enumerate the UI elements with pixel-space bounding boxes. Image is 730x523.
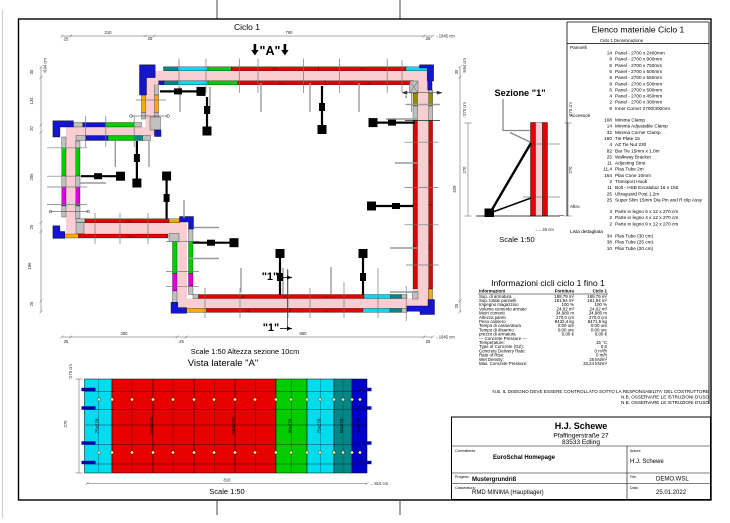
svg-text:240: 240 <box>323 295 329 299</box>
svg-text:25: 25 <box>29 224 34 229</box>
svg-text:EuroSchal Homepage: EuroSchal Homepage <box>493 455 556 461</box>
svg-text:255: 255 <box>29 173 34 181</box>
svg-text:34: 34 <box>607 234 613 239</box>
svg-text:90x270: 90x270 <box>288 418 293 433</box>
svg-text:Parte in legno 4 x 12 x 270 cm: Parte in legno 4 x 12 x 270 cm <box>615 215 678 220</box>
svg-text:Max. Concrete Pressure:: Max. Concrete Pressure: <box>479 361 528 366</box>
svg-text:Bar Tie 15mm x 1.0m: Bar Tie 15mm x 1.0m <box>615 148 660 153</box>
svg-text:240: 240 <box>278 82 284 86</box>
svg-text:Panel - 2700 x 450mm: Panel - 2700 x 450mm <box>615 94 662 99</box>
svg-text:Scale 1:50: Scale 1:50 <box>209 487 244 496</box>
svg-text:"1": "1" <box>262 271 279 283</box>
svg-text:134: 134 <box>29 97 34 105</box>
svg-text:196: 196 <box>27 262 32 270</box>
svg-text:83533 Edling: 83533 Edling <box>562 439 600 446</box>
svg-text:160: 160 <box>604 136 612 141</box>
svg-text:Committente: Committente <box>455 449 475 453</box>
svg-text:4: 4 <box>609 142 612 147</box>
svg-text:Sezione "1": Sezione "1" <box>494 88 545 98</box>
svg-text:25: 25 <box>64 37 69 42</box>
svg-text:9: 9 <box>609 106 612 111</box>
svg-text:Elenco materiale Ciclo 1: Elenco materiale Ciclo 1 <box>592 25 685 35</box>
svg-text:660: 660 <box>300 331 308 336</box>
svg-text:11: 11 <box>607 185 612 190</box>
svg-text:Panel - 2700 x 500mm: Panel - 2700 x 500mm <box>615 81 662 86</box>
svg-text:38: 38 <box>607 240 613 245</box>
svg-text:→1045 cm: →1045 cm <box>435 34 456 39</box>
svg-text:Data:: Data: <box>630 486 639 490</box>
svg-text:Pannelli: Pannelli <box>570 45 587 50</box>
svg-text:Plas Tube (25 cm): Plas Tube (25 cm) <box>615 240 653 245</box>
svg-text:N.B. OSSERVARE LE ISTRUZIONI D: N.B. OSSERVARE LE ISTRUZIONI D'USO <box>621 400 709 405</box>
svg-text:Panel - 2700 x 550mm: Panel - 2700 x 550mm <box>615 75 662 80</box>
svg-text:8: 8 <box>609 57 612 62</box>
svg-text:Plas Tube (20 cm): Plas Tube (20 cm) <box>615 246 653 251</box>
svg-text:10: 10 <box>607 246 613 251</box>
svg-text:240: 240 <box>245 309 251 313</box>
svg-text:25: 25 <box>607 191 613 196</box>
svg-text:20: 20 <box>29 126 34 131</box>
svg-text:240: 240 <box>359 67 365 71</box>
svg-text:Tie Plate 15: Tie Plate 15 <box>615 136 640 141</box>
svg-text:210: 210 <box>105 30 113 35</box>
svg-text:240x270: 240x270 <box>231 417 236 435</box>
svg-text:"A": "A" <box>260 44 281 58</box>
svg-text:Plas Tube (30 cm): Plas Tube (30 cm) <box>615 234 653 239</box>
svg-text:→ 810 cm: → 810 cm <box>369 481 389 486</box>
svg-text:"1": "1" <box>263 322 280 334</box>
svg-text:25: 25 <box>64 339 69 344</box>
svg-text:Panel - 2700 x 600mm: Panel - 2700 x 600mm <box>615 69 662 74</box>
svg-text:5: 5 <box>609 63 612 68</box>
svg-text:8: 8 <box>609 81 612 86</box>
svg-text:240: 240 <box>413 159 417 165</box>
svg-text:25: 25 <box>426 339 431 344</box>
svg-text:Panel - 2700 x 2400mm: Panel - 2700 x 2400mm <box>615 51 665 56</box>
svg-text:270: 270 <box>568 166 573 174</box>
svg-text:Lista dettagliata: Lista dettagliata <box>570 229 603 234</box>
svg-text:Panel - 2700 x 300mm: Panel - 2700 x 300mm <box>615 100 662 105</box>
svg-text:3: 3 <box>609 209 612 214</box>
svg-text:Inner Corner 2700/300mm: Inner Corner 2700/300mm <box>615 106 670 111</box>
svg-text:↑270 cm: ↑270 cm <box>462 102 467 118</box>
svg-text:2: 2 <box>609 215 612 220</box>
svg-text:Minima Clamp: Minima Clamp <box>615 118 645 123</box>
svg-text:Vista laterale "A": Vista laterale "A" <box>188 358 258 369</box>
svg-text:Walkway Bracket: Walkway Bracket <box>615 154 651 159</box>
svg-text:164: 164 <box>604 173 612 178</box>
svg-text:Minima Adjustable Clamp: Minima Adjustable Clamp <box>615 124 668 129</box>
svg-text:Ultraguard Post 1.2m: Ultraguard Post 1.2m <box>615 191 659 196</box>
svg-text:Adjusting Strut: Adjusting Strut <box>615 161 646 166</box>
svg-text:Minima Corner Clamp: Minima Corner Clamp <box>615 130 661 135</box>
svg-text:→1045 cm: →1045 cm <box>435 335 456 340</box>
svg-text:30: 30 <box>454 69 459 74</box>
svg-text:11,4: 11,4 <box>603 167 612 172</box>
svg-text:25: 25 <box>426 36 431 41</box>
svg-text:240: 240 <box>428 159 432 165</box>
svg-text:→←25 cm: →←25 cm <box>534 227 554 232</box>
svg-text:108: 108 <box>604 118 612 123</box>
svg-text:240: 240 <box>127 235 133 239</box>
svg-text:2: 2 <box>609 100 612 105</box>
svg-text:25.01.2022: 25.01.2022 <box>656 490 687 496</box>
svg-text:0,00 €: 0,00 € <box>595 332 608 337</box>
svg-text:82: 82 <box>607 148 613 153</box>
svg-text:810: 810 <box>224 478 232 483</box>
svg-text:Transport Hook: Transport Hook <box>615 179 648 184</box>
svg-text:629: 629 <box>452 185 457 193</box>
svg-text:14: 14 <box>607 51 613 56</box>
svg-text:N.B. IL DISEGNO DEVE ESSERE CO: N.B. IL DISEGNO DEVE ESSERE CONTROLLATO … <box>492 389 709 394</box>
svg-text:25: 25 <box>607 198 613 203</box>
svg-text:Accessori: Accessori <box>570 113 590 118</box>
svg-text:H.J. Schewe: H.J. Schewe <box>630 459 664 465</box>
svg-text:25: 25 <box>179 339 184 344</box>
svg-text:RMD MINIMA (Hauptlager): RMD MINIMA (Hauptlager) <box>472 490 544 496</box>
svg-text:5: 5 <box>609 87 612 92</box>
svg-text:↑694 cm: ↑694 cm <box>462 58 467 74</box>
svg-text:8: 8 <box>609 75 612 80</box>
svg-text:Panel - 2700 x 900mm: Panel - 2700 x 900mm <box>615 57 662 62</box>
svg-text:Ciclo 1: Ciclo 1 <box>593 289 608 294</box>
svg-text:Ciclo 1: Ciclo 1 <box>234 22 260 32</box>
svg-text:Mustergrundriß: Mustergrundriß <box>472 477 517 483</box>
svg-text:Super Slim 15mm Dia Pin and R: Super Slim 15mm Dia Pin and R clip Assy <box>615 198 703 203</box>
svg-text:75x270: 75x270 <box>94 418 99 433</box>
svg-text:4: 4 <box>609 94 612 99</box>
svg-text:Fornitura: Fornitura <box>555 289 575 294</box>
svg-text:240: 240 <box>428 244 432 250</box>
svg-text:25: 25 <box>607 154 613 159</box>
svg-text:2: 2 <box>609 179 612 184</box>
svg-text:AZ Tie Nut 230: AZ Tie Nut 230 <box>615 142 647 147</box>
svg-text:↑270 cm: ↑270 cm <box>68 364 73 380</box>
svg-text:0,00 €: 0,00 € <box>562 332 575 337</box>
svg-text:6: 6 <box>609 69 612 74</box>
svg-text:Parte in legno 9 x 12 x 270 cm: Parte in legno 9 x 12 x 270 cm <box>615 221 678 226</box>
svg-text:Bolt - HSB Excalubur 16 x 150: Bolt - HSB Excalubur 16 x 150 <box>615 185 679 190</box>
svg-text:32: 32 <box>607 130 613 135</box>
svg-text:240: 240 <box>413 244 417 250</box>
svg-text:Progetto: Progetto <box>455 475 469 479</box>
svg-text:760: 760 <box>286 30 294 35</box>
svg-text:50x270: 50x270 <box>339 418 344 433</box>
svg-text:File:: File: <box>630 475 637 479</box>
svg-text:300: 300 <box>121 331 129 336</box>
svg-text:25: 25 <box>29 301 34 306</box>
svg-text:240: 240 <box>365 82 371 86</box>
svg-text:240: 240 <box>125 220 131 224</box>
svg-text:11: 11 <box>607 161 612 166</box>
svg-text:2: 2 <box>609 221 612 226</box>
svg-text:Panel - 2700 x 750mm: Panel - 2700 x 750mm <box>615 63 662 68</box>
svg-text:Autore: Autore <box>630 449 641 453</box>
svg-text:Scale 1:50: Scale 1:50 <box>499 235 534 244</box>
svg-text:14: 14 <box>607 124 613 129</box>
svg-text:Plas Cone 10mm: Plas Cone 10mm <box>615 173 651 178</box>
svg-text:DEMO.WSL: DEMO.WSL <box>656 477 689 483</box>
svg-text:33,24 kN/m²: 33,24 kN/m² <box>583 361 607 366</box>
svg-text:240x270: 240x270 <box>149 417 154 435</box>
svg-text:270: 270 <box>63 420 68 428</box>
svg-text:45x270: 45x270 <box>356 418 361 433</box>
svg-text:↑694 cm: ↑694 cm <box>43 58 48 74</box>
svg-text:240: 240 <box>272 67 278 71</box>
svg-text:Ciclo 1 Denominazione: Ciclo 1 Denominazione <box>600 38 644 43</box>
svg-text:N.B. OSSERVARE LE ISTRUZIONI D: N.B. OSSERVARE LE ISTRUZIONI D'USO <box>621 395 709 400</box>
svg-text:H.J. Schewe: H.J. Schewe <box>555 421 608 431</box>
svg-text:Informazioni: Informazioni <box>479 289 505 294</box>
svg-text:Scale 1:50 Altezza sezione 1: Scale 1:50 Altezza sezione 10cm <box>191 347 299 356</box>
svg-text:Plas Tube 2m: Plas Tube 2m <box>615 167 644 172</box>
svg-text:Panel - 2700 x 500mm: Panel - 2700 x 500mm <box>615 87 662 92</box>
svg-text:240: 240 <box>323 309 329 313</box>
svg-text:Altro: Altro <box>570 204 580 209</box>
svg-text:Parte in legno 5 x 12 x 270 cm: Parte in legno 5 x 12 x 270 cm <box>615 209 678 214</box>
svg-text:270: 270 <box>462 166 467 174</box>
svg-text:25: 25 <box>148 36 153 41</box>
svg-text:30: 30 <box>29 69 34 74</box>
svg-text:75x270: 75x270 <box>317 418 322 433</box>
svg-text:Informazioni cicli ciclo 1 fi: Informazioni cicli ciclo 1 fino 1 <box>491 278 605 288</box>
svg-text:25: 25 <box>454 303 459 308</box>
